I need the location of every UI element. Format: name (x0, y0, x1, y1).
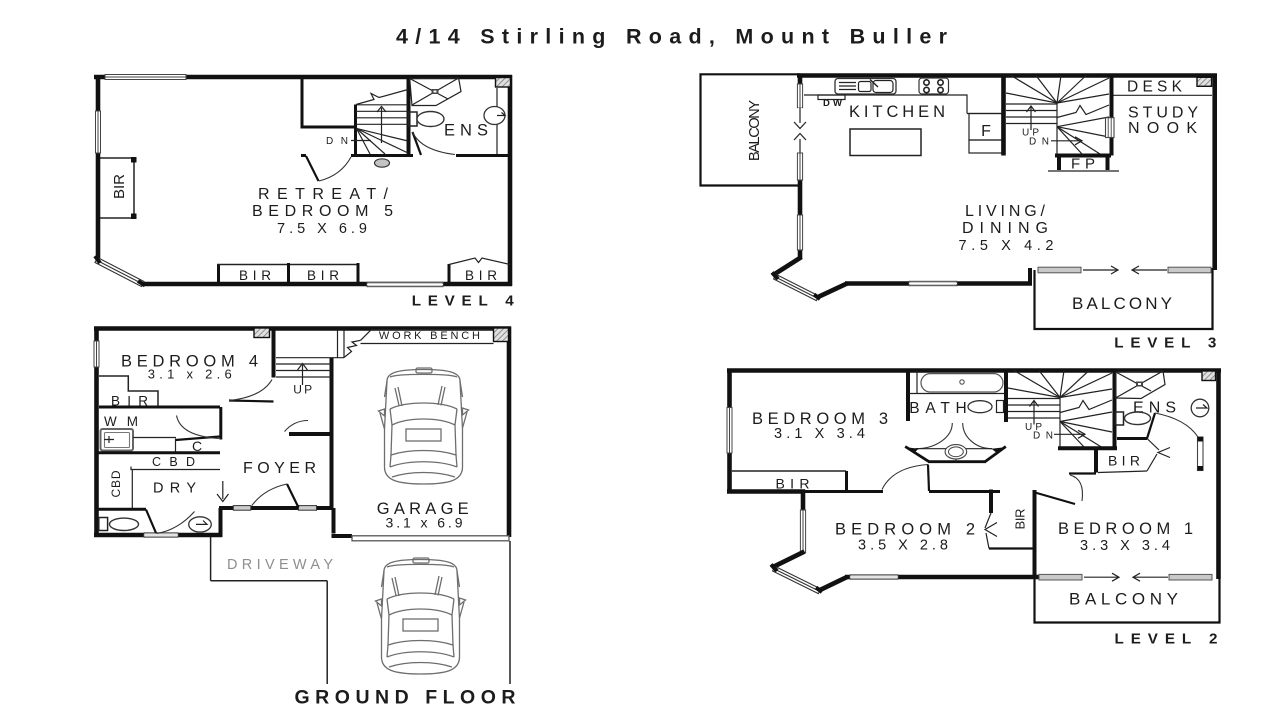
svg-text:3.3 X 3.4: 3.3 X 3.4 (1080, 538, 1170, 554)
svg-text:3.1 X 3.4: 3.1 X 3.4 (774, 426, 865, 442)
svg-text:DW: DW (823, 98, 842, 109)
svg-text:DRIVEWAY: DRIVEWAY (227, 557, 333, 573)
svg-text:BIR: BIR (1108, 453, 1140, 469)
svg-text:3.1 x 2.6: 3.1 x 2.6 (148, 367, 232, 382)
svg-text:BIR: BIR (465, 268, 497, 283)
svg-text:CBD: CBD (109, 470, 123, 497)
svg-text:LEVEL 3: LEVEL 3 (1114, 334, 1216, 351)
svg-text:3.1 x 6.9: 3.1 x 6.9 (386, 515, 463, 531)
svg-text:WORK BENCH: WORK BENCH (379, 330, 480, 342)
svg-text:GROUND FLOOR: GROUND FLOOR (295, 687, 516, 709)
svg-text:STUDY: STUDY (1128, 105, 1198, 122)
svg-text:BIR: BIR (239, 268, 271, 283)
svg-text:7.5 X 6.9: 7.5 X 6.9 (277, 221, 367, 237)
svg-text:RETREAT/: RETREAT/ (258, 186, 389, 203)
svg-text:BALCONY: BALCONY (747, 100, 763, 161)
svg-text:CBD: CBD (152, 455, 195, 469)
svg-text:DRY: DRY (153, 481, 196, 497)
svg-text:BIR: BIR (111, 394, 148, 409)
svg-text:BIR: BIR (1013, 509, 1028, 530)
svg-text:BALCONY: BALCONY (1072, 294, 1172, 313)
svg-text:7.5 X 4.2: 7.5 X 4.2 (959, 238, 1054, 254)
svg-text:BIR: BIR (307, 268, 339, 283)
svg-text:ENS: ENS (444, 122, 488, 140)
svg-text:F: F (981, 123, 991, 140)
svg-text:LEVEL 2: LEVEL 2 (1115, 631, 1218, 648)
svg-text:BIR: BIR (111, 174, 128, 199)
svg-text:BIR: BIR (776, 476, 810, 492)
svg-text:BALCONY: BALCONY (1069, 590, 1178, 609)
svg-text:3.5 X 2.8: 3.5 X 2.8 (858, 538, 948, 554)
